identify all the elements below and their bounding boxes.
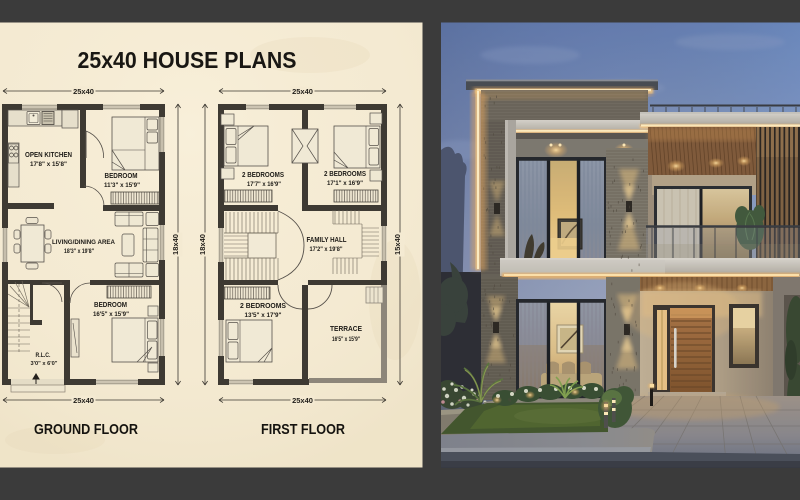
svg-text:25x40: 25x40 [73, 396, 94, 405]
svg-text:25x40 HOUSE PLANS: 25x40 HOUSE PLANS [78, 47, 297, 73]
svg-text:17'1" x 16'9": 17'1" x 16'9" [327, 181, 363, 187]
svg-text:OPEN KITCHEN: OPEN KITCHEN [25, 152, 72, 159]
svg-text:18'3" x 19'8": 18'3" x 19'8" [64, 249, 94, 255]
svg-text:16'5" x 15'9": 16'5" x 15'9" [93, 312, 129, 318]
svg-text:16'5" x 15'9": 16'5" x 15'9" [332, 337, 360, 343]
svg-text:FAMILY HALL: FAMILY HALL [307, 237, 348, 244]
svg-text:18x40: 18x40 [171, 234, 180, 255]
svg-text:25x40: 25x40 [292, 396, 313, 405]
svg-text:GROUND FLOOR: GROUND FLOOR [34, 421, 138, 438]
svg-text:13'5" x 17'9": 13'5" x 17'9" [245, 313, 282, 319]
svg-text:17'7" x 16'9": 17'7" x 16'9" [247, 182, 281, 188]
svg-text:25x40: 25x40 [73, 87, 94, 96]
svg-text:TERRACE: TERRACE [330, 326, 362, 333]
svg-text:18x40: 18x40 [198, 234, 207, 255]
svg-text:BEDROOM: BEDROOM [105, 173, 138, 180]
svg-text:2 BEDROOMS: 2 BEDROOMS [324, 171, 366, 178]
svg-text:17'2" x 19'8": 17'2" x 19'8" [310, 247, 343, 253]
svg-text:17'8" x 15'8": 17'8" x 15'8" [30, 162, 67, 168]
svg-text:LIVING/DINING AREA: LIVING/DINING AREA [52, 239, 115, 246]
svg-text:11'3" x 15'9": 11'3" x 15'9" [104, 183, 140, 189]
svg-text:FIRST FLOOR: FIRST FLOOR [261, 421, 345, 438]
svg-text:2 BEDROOMS: 2 BEDROOMS [240, 303, 286, 310]
svg-text:15x40: 15x40 [393, 234, 402, 255]
svg-text:3'0" x 6'0": 3'0" x 6'0" [31, 361, 58, 367]
svg-text:R.L.C.: R.L.C. [36, 352, 51, 359]
svg-text:BEDROOM: BEDROOM [94, 302, 127, 309]
svg-text:2 BEDROOMS: 2 BEDROOMS [242, 172, 284, 179]
svg-text:25x40: 25x40 [292, 87, 313, 96]
